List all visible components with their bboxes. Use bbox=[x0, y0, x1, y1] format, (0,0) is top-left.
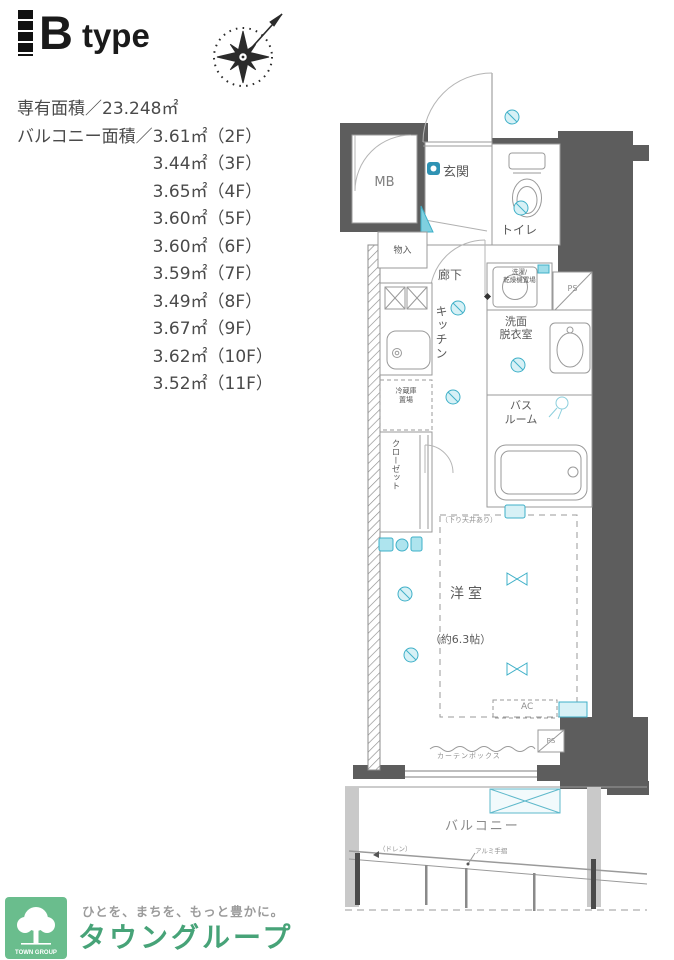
ac-unit-icon bbox=[559, 702, 587, 717]
storage-label: 物入 bbox=[378, 243, 427, 256]
balcony-area-entry: 3.60㎡（6F） bbox=[153, 234, 273, 262]
ps-bottom-label: PS bbox=[538, 737, 564, 745]
footer-brand: タウングループ bbox=[78, 916, 293, 956]
logo-text: TOWN GROUP bbox=[15, 950, 57, 956]
entrance bbox=[423, 73, 492, 245]
floorplan-graphics bbox=[325, 65, 665, 920]
window bbox=[405, 771, 537, 777]
washer-label: 洗濯/ 乾燥機置場 bbox=[487, 268, 552, 284]
drain-note: （ドレン） bbox=[379, 843, 412, 853]
mb-label: MB bbox=[352, 175, 417, 190]
balcony-area-entry: 3.44㎡（3F） bbox=[153, 151, 273, 179]
fridge-label: 冷蔵庫 置場 bbox=[380, 387, 432, 405]
balcony-area-block: バルコニー面積／ 3.61㎡（2F） 3.44㎡（3F） 3.65㎡（4F） 3… bbox=[17, 124, 273, 399]
escape-hatch-icon bbox=[490, 789, 560, 813]
type-letter: B bbox=[39, 10, 73, 56]
balcony-area-list: 3.61㎡（2F） 3.44㎡（3F） 3.65㎡（4F） 3.60㎡（5F） … bbox=[153, 124, 273, 399]
exclusive-area-text: 専有面積／23.248㎡ bbox=[17, 96, 273, 124]
town-group-logo: TOWN GROUP bbox=[5, 897, 67, 959]
intercom-dot bbox=[431, 166, 437, 172]
hatched-wall bbox=[368, 245, 380, 770]
ac-label: AC bbox=[521, 702, 533, 712]
genkan-label: 玄関 bbox=[443, 161, 469, 180]
toilet-label: トイレ bbox=[501, 221, 537, 238]
balcony-area-entry: 3.59㎡（7F） bbox=[153, 261, 273, 289]
balcony-label: バルコニー bbox=[445, 815, 520, 834]
light-box-icon bbox=[505, 505, 525, 518]
compass-north-icon bbox=[198, 5, 293, 100]
balcony-area-entry: 3.61㎡（2F） bbox=[153, 124, 273, 152]
plan-type-title: B type bbox=[18, 10, 150, 56]
switch-cluster-icon bbox=[379, 537, 422, 551]
title-bar-icon bbox=[18, 10, 33, 56]
handrail-note: アルミ手摺 bbox=[475, 845, 507, 855]
kitchen-label: キッチン bbox=[433, 305, 450, 361]
ceiling-note: （下り天井あり） bbox=[441, 515, 497, 525]
closet-label: クローゼット bbox=[389, 439, 401, 490]
balcony-area-entry: 3.62㎡（10F） bbox=[153, 344, 273, 372]
balcony-area-entry: 3.60㎡（5F） bbox=[153, 206, 273, 234]
outlet-bowtie-icon bbox=[507, 573, 527, 675]
balcony-area-entry: 3.49㎡（8F） bbox=[153, 289, 273, 317]
balcony-area-prefix: バルコニー面積／ bbox=[17, 124, 153, 399]
room-dashed-zone bbox=[440, 515, 577, 717]
area-info: 専有面積／23.248㎡ バルコニー面積／ 3.61㎡（2F） 3.44㎡（3F… bbox=[17, 96, 273, 399]
washroom-label: 洗面 脱衣室 bbox=[485, 315, 547, 341]
western-room-label: 洋室 bbox=[433, 583, 503, 603]
kitchen-counter bbox=[380, 283, 432, 375]
floorplan-page: B type 専有面積／23. bbox=[0, 0, 674, 960]
curtain-box-label: カーテンボックス bbox=[437, 751, 501, 761]
balcony-area-entry: 3.52㎡（11F） bbox=[153, 371, 273, 399]
type-word: type bbox=[82, 16, 150, 56]
balcony-area-entry: 3.67㎡（9F） bbox=[153, 316, 273, 344]
bathroom-label: バス ルーム bbox=[485, 399, 557, 427]
floorplan-drawing: MB 玄関 トイレ 物入 廊下 キッチン 洗濯/ 乾燥機置場 PS 洗面 脱衣室… bbox=[325, 65, 665, 920]
western-room-size-label: （約6.3帖） bbox=[413, 631, 508, 647]
hallway-label: 廊下 bbox=[438, 266, 462, 283]
balcony-area-entry: 3.65㎡（4F） bbox=[153, 179, 273, 207]
ps-top-label: PS bbox=[553, 284, 592, 293]
